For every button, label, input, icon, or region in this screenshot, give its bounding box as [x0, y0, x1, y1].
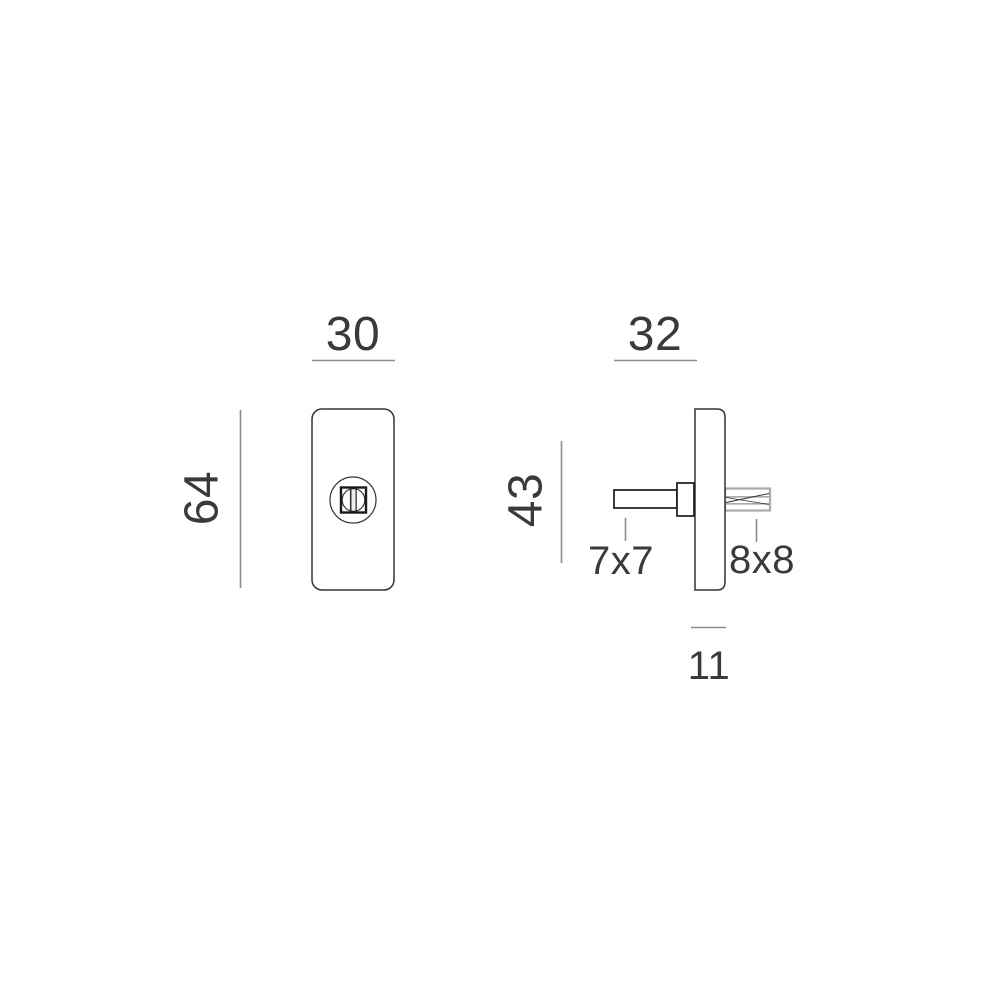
spindle-collar-outline [677, 483, 694, 516]
side-plate-outline [695, 409, 725, 590]
right-spindle-dim-label: 8x8 [729, 538, 795, 582]
left-spindle-dim-label: 7x7 [588, 539, 654, 583]
front-width-dim-label: 30 [326, 308, 380, 361]
thickness-dim-label: 11 [688, 644, 731, 688]
right-spindle-8x8 [725, 489, 770, 511]
front-height-dim-label: 64 [176, 471, 229, 525]
side-width-dim-label: 32 [628, 308, 682, 361]
left-spindle-outline [614, 490, 677, 508]
drawing-stage: 30 64 32 43 7x7 8x8 11 [0, 0, 1000, 1000]
left-spindle-7x7 [614, 483, 694, 516]
side-height-dim-label: 43 [500, 473, 553, 527]
right-spindle-outline [725, 489, 770, 511]
technical-drawing: 30 64 32 43 7x7 8x8 11 [0, 0, 1000, 1000]
front-view [312, 409, 394, 590]
spindle-slot-fill [351, 489, 357, 511]
